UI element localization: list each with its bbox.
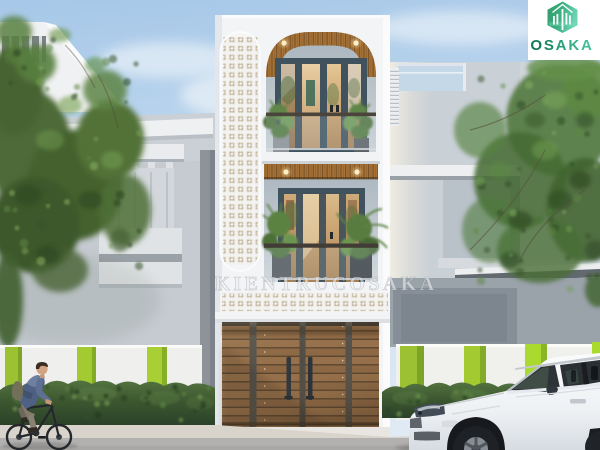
svg-text:KIENTRUCOSAKA: KIENTRUCOSAKA: [214, 273, 437, 295]
svg-text:OSAKA: OSAKA: [530, 37, 593, 54]
